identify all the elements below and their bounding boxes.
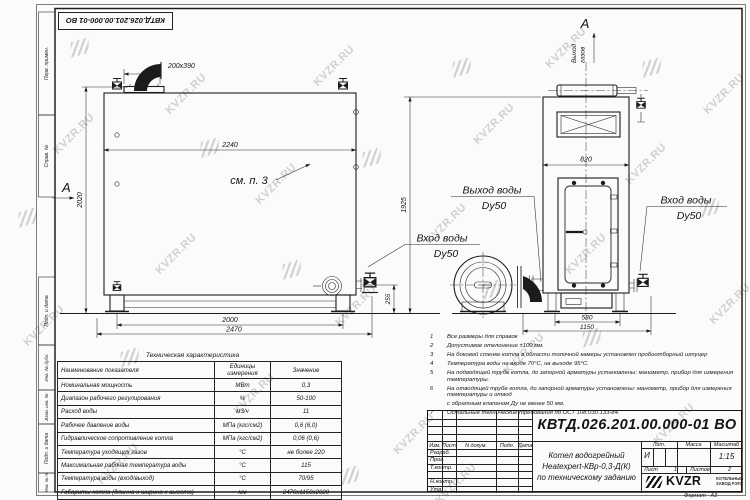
spec-cell: Диапазон рабочего регулирования <box>58 392 215 405</box>
sig-tkontr: Т.контр. <box>430 465 453 471</box>
spec-cell: 70/95 <box>271 472 342 485</box>
note-text: Допустимое отклонение ±100 мм. <box>447 343 742 350</box>
spec-cell: не более 220 <box>271 445 342 458</box>
drawing-texts: 2240 2020 200x390 1925 255 2000 2470 820… <box>61 16 712 334</box>
water-outlet-dy: Dy50 <box>482 200 507 212</box>
note-text: На боковой стенке котла в области топочн… <box>447 352 742 359</box>
rev-header-podp: Подп. <box>496 443 518 449</box>
format-label: Формат А3 <box>684 493 717 499</box>
spec-cell: 0,06 (0,6) <box>271 432 342 445</box>
frame-column-podp-data-2: Подп. и дата <box>39 424 56 473</box>
corner-designation-stamp: КВТД.026.201.00.000-01 ВО <box>58 12 173 30</box>
spec-header-units: Единицы измерения <box>215 362 271 379</box>
spec-cell: м3/ч <box>215 405 271 418</box>
frame-column-podp-data-1: Подп. и дата <box>39 277 56 345</box>
note-number: 1 <box>430 334 447 341</box>
view-label-a: А <box>580 16 590 31</box>
frame-column-sprav-no: Справ. № <box>39 115 56 197</box>
frame-column-inv-podl: Инв. № подл. <box>39 473 56 492</box>
boiler-side-view <box>60 62 440 314</box>
water-inlet-right-dy: Dy50 <box>677 210 702 222</box>
format-word: Формат <box>684 493 706 499</box>
spec-cell: 2470х1150х2020 <box>271 486 342 499</box>
spec-cell: 0,3 <box>271 379 342 392</box>
gas-outlet-label-1: Выход <box>570 43 578 63</box>
gas-outlet-label-2: газов <box>580 46 587 63</box>
note-number: 5 <box>430 370 447 383</box>
water-inlet-left-dy: Dy50 <box>434 248 459 260</box>
fan-duct-elbow <box>523 276 542 302</box>
spec-cell: МВт <box>215 379 271 392</box>
spec-cell: Габариты котла (длинна х ширина х высота… <box>58 486 215 499</box>
spec-cell: 0,6 (6,0) <box>271 419 342 432</box>
note-item: 3На боковой стенке котла в области топоч… <box>430 352 742 359</box>
note-text: На подводящей трубе котла, до запорной а… <box>447 370 742 383</box>
explosion-valve-hatch <box>557 112 620 137</box>
spec-header-row: Наименование показателя Единицы измерени… <box>58 362 342 379</box>
spec-cell: Рабочее давление воды <box>58 419 215 432</box>
spec-row: Гидравлическое сопротивление котлаМПа (к… <box>58 432 342 445</box>
spec-table-title: Техническая характеристика <box>57 352 328 359</box>
spec-cell: 50-100 <box>271 392 342 405</box>
section-label-a: А <box>61 180 71 195</box>
note-item: 2Допустимое отклонение ±100 мм. <box>430 343 742 350</box>
spec-row: Рабочее давление водыМПа (кгс/см2)0,6 (6… <box>58 419 342 432</box>
frame-column-vzam-inv: Взам. инв. № <box>39 390 56 424</box>
kvzr-logo-sub2: ЗАВОД РЭП <box>716 481 743 486</box>
see-note-label: см. п. 3 <box>230 175 268 187</box>
kvzr-logo-subtext: КОТЕЛЬНЫЙ ЗАВОД РЭП <box>716 476 743 487</box>
see-note-leader <box>276 164 310 180</box>
spec-table: Техническая характеристика Наименование … <box>57 352 328 500</box>
product-name-line1: Котел водогрейный <box>534 451 639 460</box>
spec-cell: Температура уходящих газов <box>58 445 215 458</box>
sig-utv: Утв. <box>430 487 443 493</box>
note-item: 5На подводящей трубе котла, до запорной … <box>430 370 742 383</box>
dim-label-820: 820 <box>580 157 592 164</box>
note-number <box>430 401 447 408</box>
scale-value: 1:15 <box>710 452 743 461</box>
note-number: 4 <box>430 361 447 368</box>
sig-prov: Пров. <box>430 457 445 463</box>
drain-valve <box>113 282 122 291</box>
scale-header: Масштаб <box>710 442 743 448</box>
dim-label-2020: 2020 <box>77 192 84 209</box>
spec-row: Диапазон рабочего регулирования%50-100 <box>58 392 342 405</box>
dim-label-2000: 2000 <box>221 317 238 324</box>
water-outlet-label: Выход воды <box>462 185 521 197</box>
dim-label-2240: 2240 <box>221 142 238 149</box>
spec-row: Габариты котла (длинна х ширина х высота… <box>58 486 342 499</box>
spec-cell: Номинальная мощность <box>58 379 215 392</box>
rev-header-list: Лист <box>442 443 456 449</box>
spec-row: Температура воды (вход/выход)°С70/95 <box>58 472 342 485</box>
note-number: 6 <box>430 386 447 399</box>
sheet-value: 1 <box>674 467 677 473</box>
sheet-label: Лист <box>644 467 658 473</box>
spec-cell: °С <box>215 472 271 485</box>
spec-cell: МПа (кгс/см2) <box>215 419 271 432</box>
dim-label-2470: 2470 <box>225 327 242 334</box>
blower-fan <box>450 252 542 318</box>
spec-row: Температура уходящих газов°Сне более 220 <box>58 445 342 458</box>
spec-cell: % <box>215 392 271 405</box>
sig-nkontr: Н.контр. <box>430 479 454 485</box>
note-text: На отводящей трубе котла, до запорной ар… <box>447 386 742 399</box>
dim-label-580: 580 <box>581 315 592 322</box>
note-text: Все размеры для справок <box>447 334 742 341</box>
dim-label-1150: 1150 <box>580 324 595 331</box>
sig-razrab: Разраб. <box>430 450 450 456</box>
note-text: с обратным клапаном Ду не менее 50 мм. <box>447 401 742 408</box>
drawing-sheet: KVZR.RU KVZR.RU KVZR.RU KVZR.RU KVZR.RU … <box>0 0 750 500</box>
dim-label-1925: 1925 <box>401 197 408 213</box>
designation: КВТД.026.201.00.000-01 ВО <box>533 412 741 439</box>
air-vent-valve <box>636 94 646 122</box>
spec-cell: Расход воды <box>58 405 215 418</box>
spec-cell: МПа (кгс/см2) <box>215 432 271 445</box>
dim-label-200x390: 200x390 <box>167 63 195 70</box>
title-block: КВТД.026.201.00.000-01 ВО Изм. Лист N до… <box>427 410 742 492</box>
product-name-line2: Heatexpert-КВр-0,3-Д(К) <box>534 462 639 471</box>
spec-cell: °С <box>215 445 271 458</box>
spec-cell: 11 <box>271 405 342 418</box>
water-inlet-right-label: Вход воды <box>661 195 712 207</box>
spec-header-value: Значение <box>271 362 342 379</box>
water-inlet-valve-side <box>356 273 378 292</box>
frame-column-perv-primen: Перв. примен. <box>39 12 56 115</box>
furnace-door <box>558 178 618 290</box>
format-value: А3 <box>710 493 717 499</box>
note-item: 1Все размеры для справок <box>430 334 742 341</box>
lit-value: И <box>641 451 653 460</box>
note-number: 3 <box>430 352 447 359</box>
kvzr-logo-text: KVZR <box>666 474 701 488</box>
spec-header-name: Наименование показателя <box>58 362 215 379</box>
spec-cell: Температура воды (вход/выход) <box>58 472 215 485</box>
notes-list: 1Все размеры для справок 2Допустимое отк… <box>430 334 742 419</box>
safety-valve-left <box>112 79 122 90</box>
frame-column-inv-dubl: Инв. № дубл. <box>39 345 56 390</box>
mass-header: Масса <box>677 442 710 448</box>
note-number: 2 <box>430 343 447 350</box>
note-text: Температура воды на входе 70°С, на выход… <box>447 361 742 368</box>
rev-header-izm: Изм. <box>428 443 442 449</box>
spec-cell: °С <box>215 459 271 472</box>
lit-header: Лит. <box>641 442 677 448</box>
spec-cell: Гидравлическое сопротивление котла <box>58 432 215 445</box>
water-inlet-valve-front <box>629 274 649 292</box>
sheets-value: 2 <box>728 467 731 473</box>
spec-row: Номинальная мощностьМВт0,3 <box>58 379 342 392</box>
spec-row: Расход водым3/ч11 <box>58 405 342 418</box>
dim-label-255: 255 <box>385 293 392 305</box>
safety-valve-right <box>338 79 348 90</box>
note-item: с обратным клапаном Ду не менее 50 мм. <box>430 401 742 408</box>
note-item: 6На отводящей трубе котла, до запорной а… <box>430 386 742 399</box>
spec-cell: 115 <box>271 459 342 472</box>
spec-row: Максимальная рабочая температура воды°С1… <box>58 459 342 472</box>
product-name-line3: по техническому заданию <box>534 473 639 482</box>
water-inlet-left-label: Вход воды <box>417 233 468 245</box>
sheets-label: Листов <box>690 467 710 473</box>
note-item: 4Температура воды на входе 70°С, на выхо… <box>430 361 742 368</box>
kvzr-logo-mark <box>644 476 664 488</box>
rev-header-ndokum: N докум. <box>456 443 496 449</box>
rev-header-data: Дата <box>518 443 532 449</box>
spec-cell: Максимальная рабочая температура воды <box>58 459 215 472</box>
spec-cell: мм <box>215 486 271 499</box>
kvzr-logo: KVZR КОТЕЛЬНЫЙ ЗАВОД РЭП <box>642 473 741 491</box>
